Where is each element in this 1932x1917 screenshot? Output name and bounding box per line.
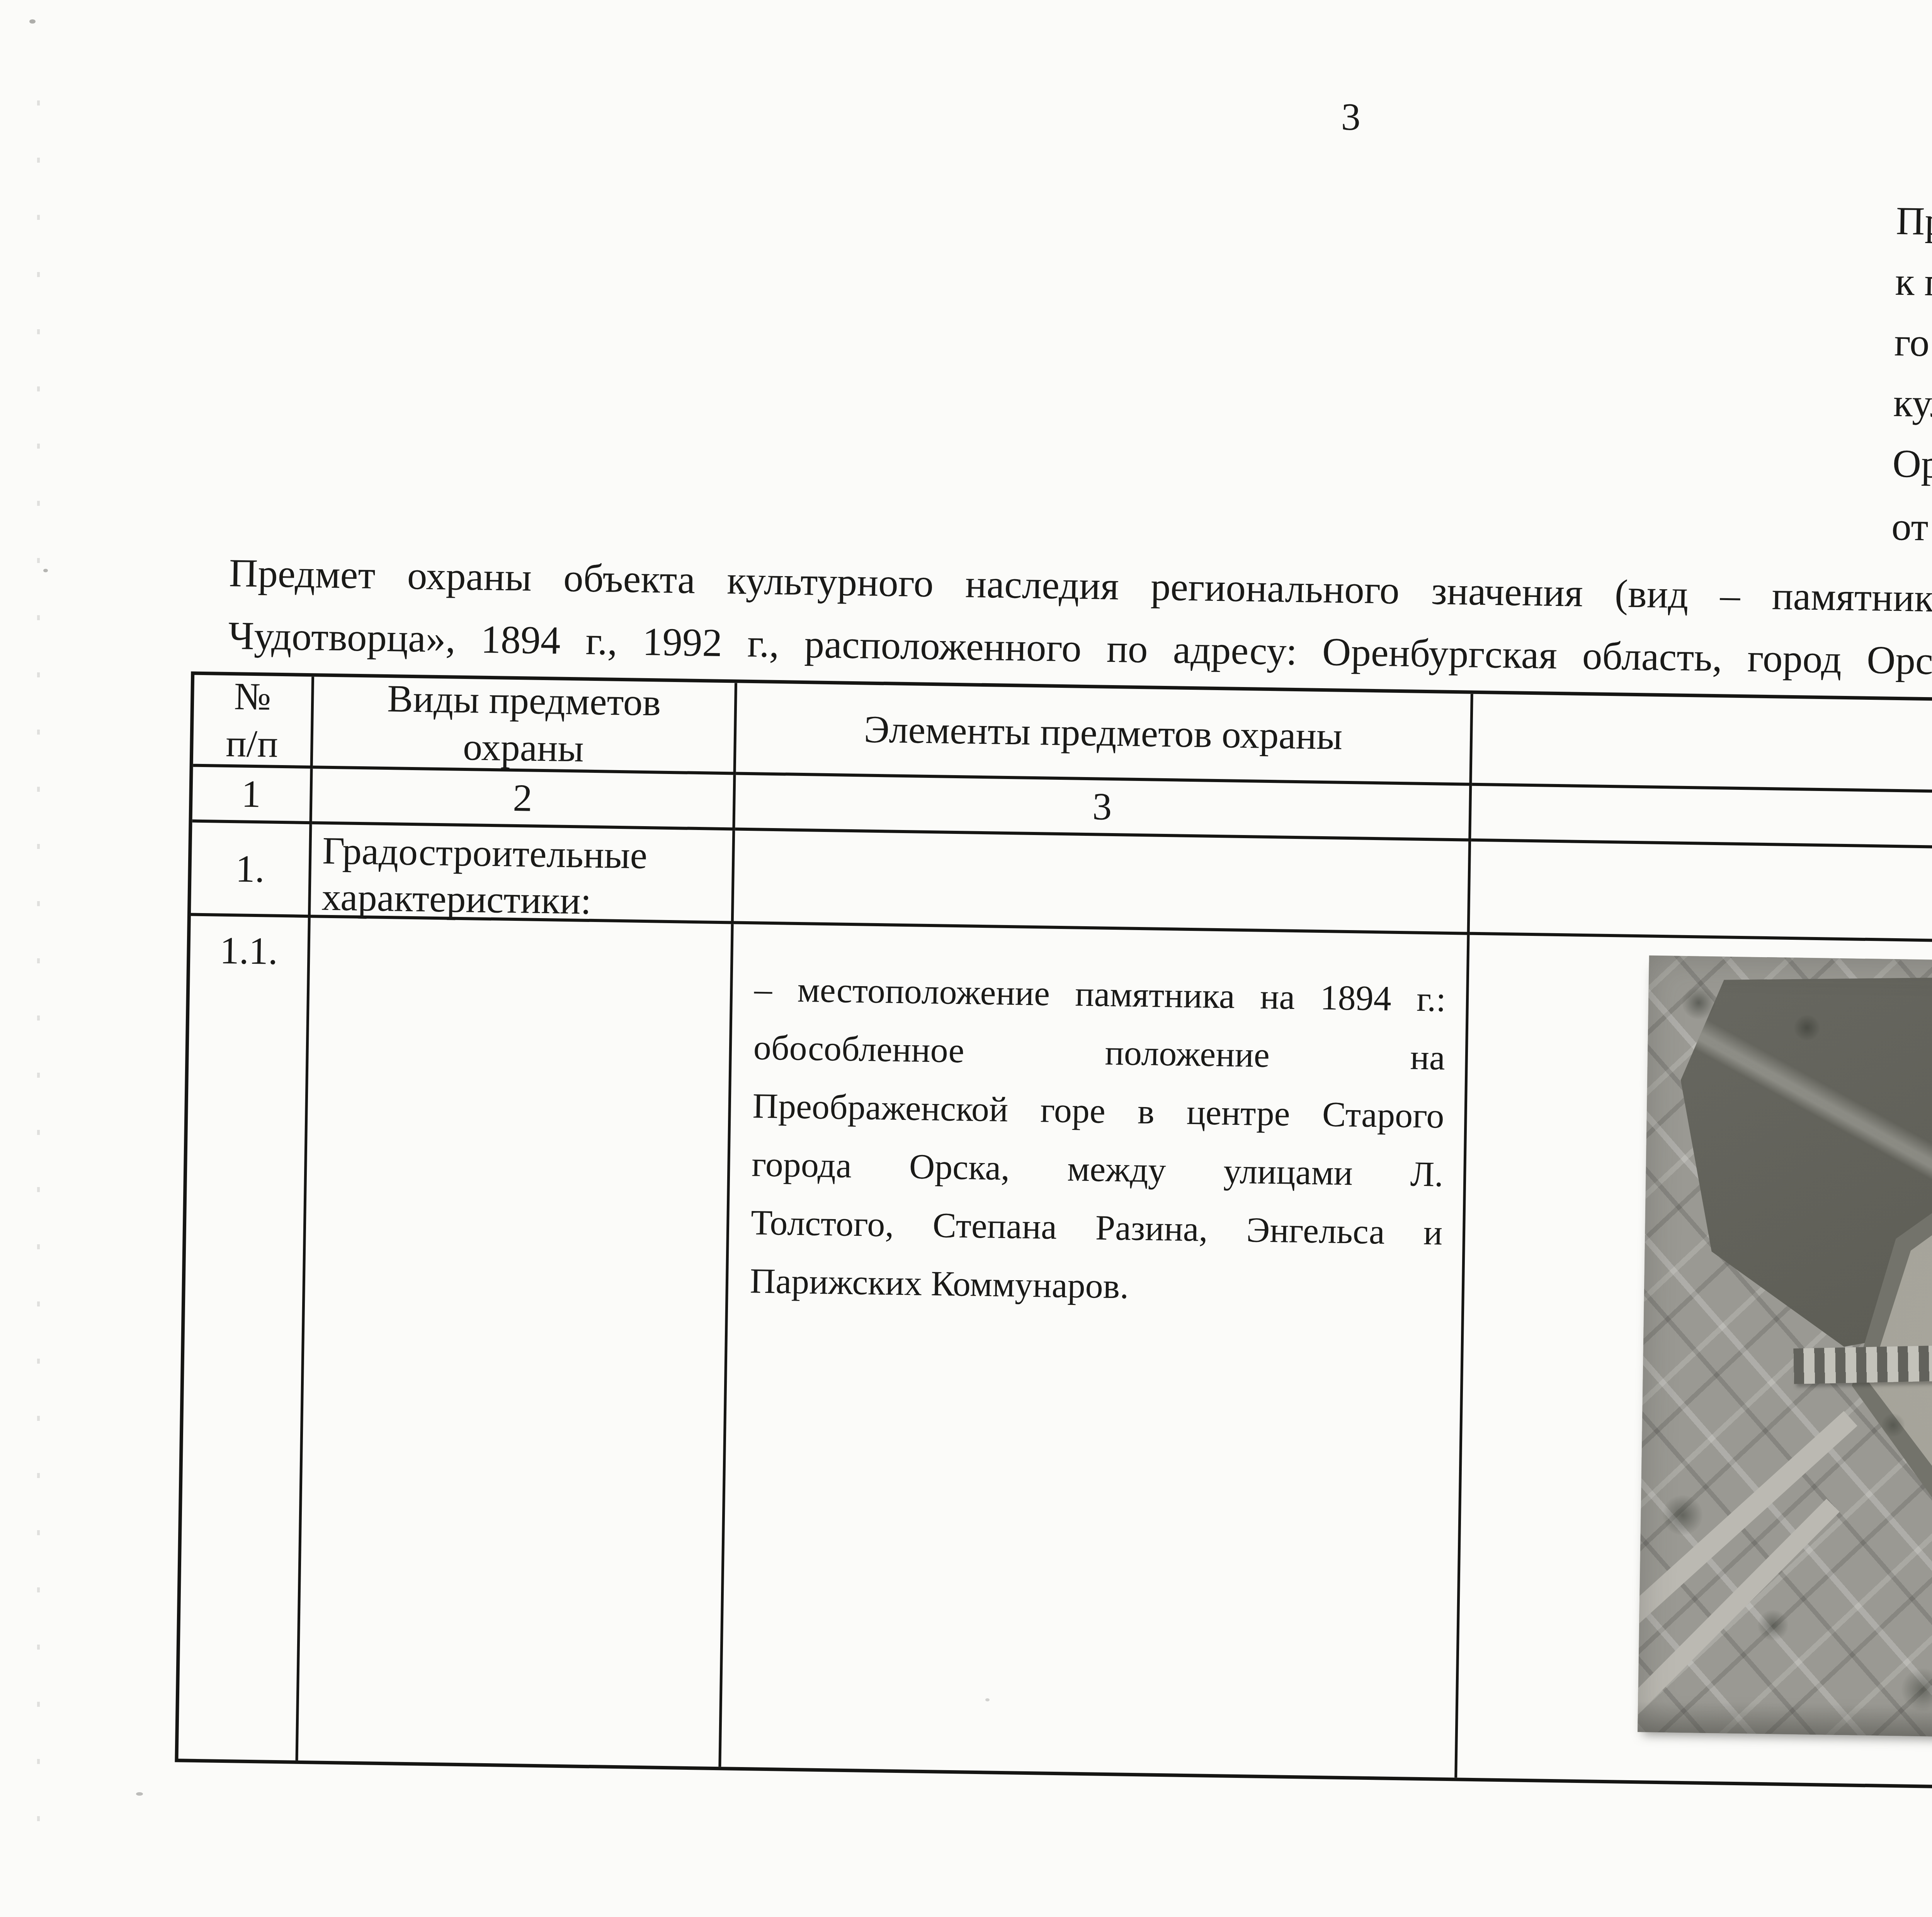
header-kinds-label: Виды предметов охраны: [353, 675, 695, 774]
document-sheet: 3 Приложение № 1 к приказу инспекции гос…: [0, 0, 1932, 1917]
elements-text-line: Толстого, Степана Разина, Энгельса и: [750, 1193, 1443, 1262]
header-elements-label: Элементы предметов охраны: [864, 706, 1343, 760]
header-cell-elements: Элементы предметов охраны: [736, 683, 1473, 786]
elements-text-line: Преображенской горе в центре Старого: [752, 1077, 1445, 1145]
row-1-number: 1.: [191, 823, 312, 918]
photo-vignette: [1638, 956, 1932, 1745]
row-1-elements-empty: [734, 830, 1471, 935]
elements-text-line: – местоположение памятника на 1894 г.:: [754, 960, 1446, 1029]
aerial-photo: [1638, 956, 1932, 1745]
page-number: 3: [1308, 95, 1394, 139]
date-prefix: от «: [1891, 504, 1932, 549]
row-1-1-kind-empty: [298, 918, 733, 1767]
header-num-top: №: [234, 673, 271, 720]
protection-subjects-table: № п/п Виды предметов охраны Элементы пре…: [175, 672, 1932, 1799]
approval-date-line: от «23».09.2025 г. №01-33-116: [1891, 495, 1932, 578]
row-1-1-number: 1.1.: [179, 916, 311, 1761]
elements-text-line: города Орска, между улицами Л.: [751, 1135, 1444, 1204]
colnum-cell-3: 3: [735, 775, 1472, 841]
row-1-1-photo-cell: [1457, 935, 1932, 1796]
elements-text-line: обособленное положение на: [753, 1018, 1446, 1087]
header-num-bottom: п/п: [226, 720, 279, 768]
colnum-cell-2: 2: [312, 769, 736, 830]
approval-block: Приложение № 1 к приказу инспекции госуд…: [1891, 191, 1932, 578]
scanned-document-page: 3 Приложение № 1 к приказу инспекции гос…: [0, 0, 1932, 1917]
elements-text-line: Парижских Коммунаров.: [750, 1252, 1442, 1320]
row-1-kind: Градостроительные характеристики:: [311, 824, 735, 924]
row-1-1-elements: – местоположение памятника на 1894 г.: о…: [721, 924, 1469, 1778]
colnum-cell-1: 1: [192, 767, 313, 825]
header-cell-num: № п/п: [193, 675, 314, 769]
header-cell-kinds: Виды предметов охраны: [313, 677, 737, 775]
